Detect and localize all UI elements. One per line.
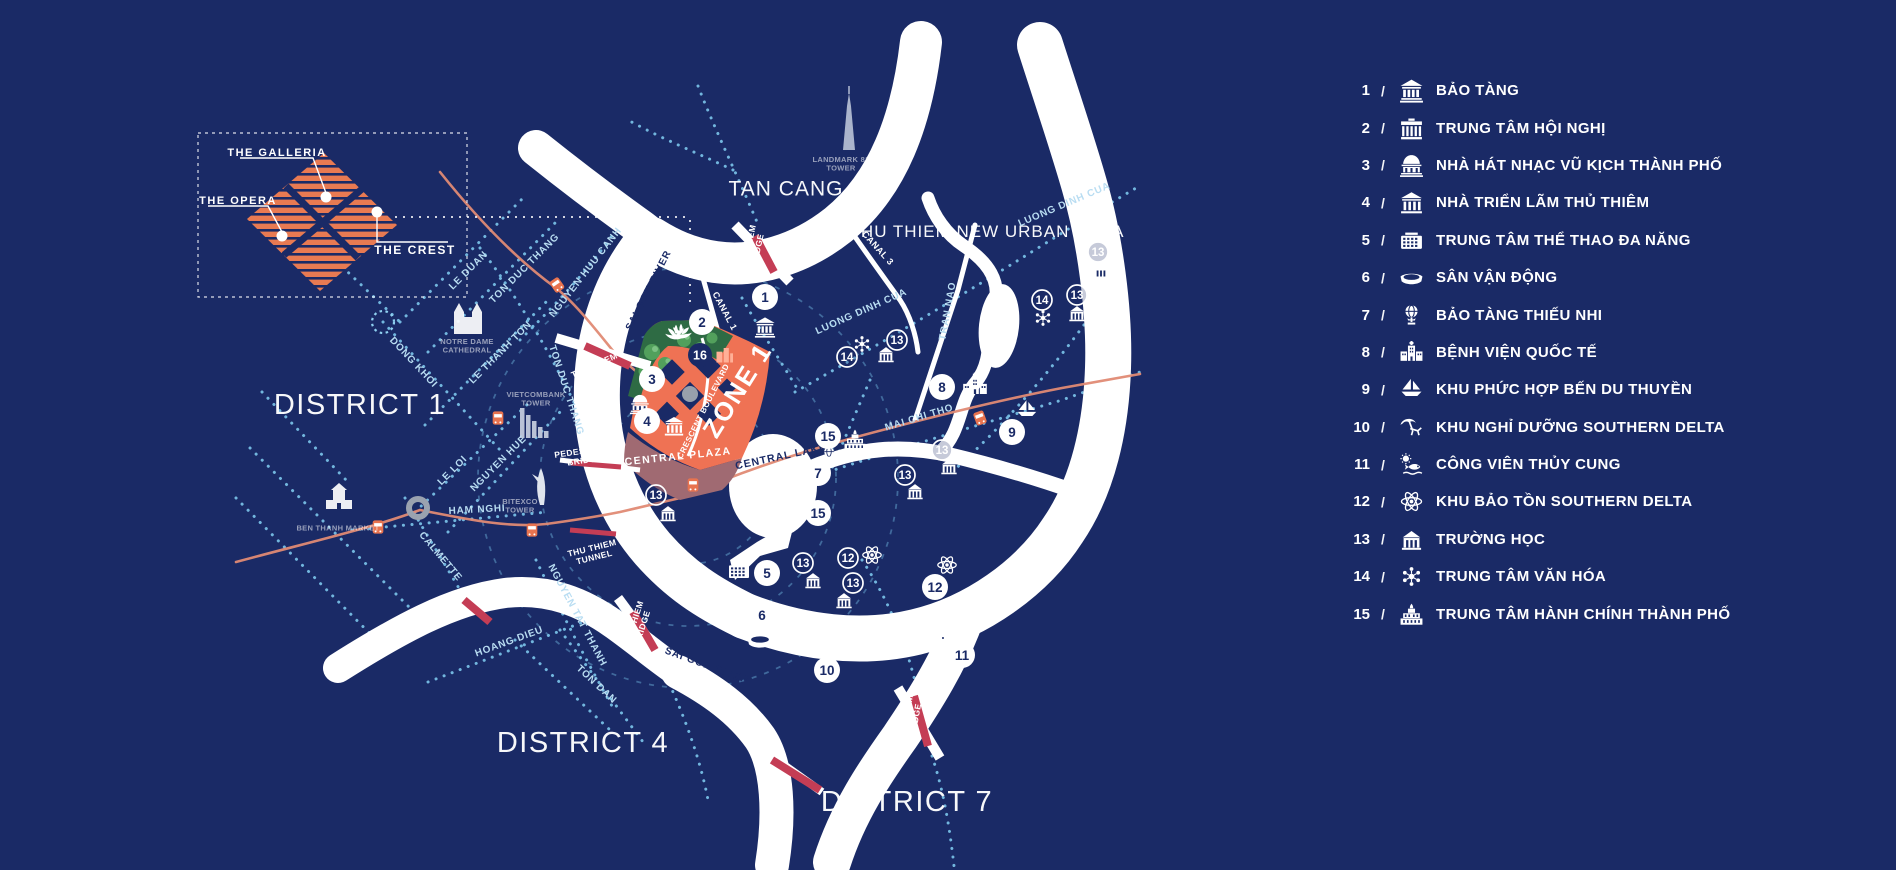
svg-text:5: 5 — [763, 566, 771, 581]
svg-text:13: 13 — [899, 470, 912, 482]
svg-text:15: 15 — [820, 429, 836, 444]
legend-number: 7 — [1340, 307, 1370, 324]
svg-text:7: 7 — [814, 466, 822, 481]
map-label: THE CREST — [374, 243, 456, 257]
legend-item-1: 1 / BẢO TÀNG — [1340, 72, 1880, 109]
svg-text:11: 11 — [955, 648, 970, 663]
legend-separator: / — [1370, 195, 1396, 211]
svg-text:6: 6 — [758, 608, 766, 623]
legend-item-2: 2 / TRUNG TÂM HỘI NGHỊ — [1340, 109, 1880, 146]
bus-icon — [493, 411, 504, 424]
svg-text:13: 13 — [650, 490, 663, 502]
legend-separator: / — [1370, 120, 1396, 136]
legend-item-5: 5 / TRUNG TÂM THỂ THAO ĐA NĂNG — [1340, 222, 1880, 259]
svg-text:13: 13 — [891, 335, 904, 347]
map-marker-15: 15 — [805, 500, 831, 526]
svg-text:13: 13 — [797, 558, 810, 570]
plaza-hub — [682, 386, 698, 402]
sailboat-icon — [1396, 377, 1426, 403]
svg-text:12: 12 — [842, 553, 855, 565]
map-label: THE OPERA — [199, 195, 277, 207]
svg-text:13: 13 — [936, 445, 949, 457]
legend-label: TRƯỜNG HỌC — [1436, 531, 1545, 548]
svg-text:1: 1 — [761, 290, 769, 305]
legend-separator: / — [1370, 494, 1396, 510]
svg-text:3: 3 — [648, 372, 656, 387]
stadium-icon — [1396, 265, 1426, 291]
map-label: DISTRICT 4 — [497, 727, 669, 759]
legend-label: TRUNG TÂM HÀNH CHÍNH THÀNH PHỐ — [1436, 606, 1730, 623]
convention-icon — [1396, 115, 1426, 141]
legend-separator: / — [1370, 531, 1396, 547]
legend-item-9: 9 / KHU PHỨC HỢP BẾN DU THUYỀN — [1340, 371, 1880, 408]
map-label: NOTRE DAMECATHEDRAL — [440, 337, 493, 354]
stadium-icon — [748, 636, 773, 648]
legend-separator: / — [1370, 569, 1396, 585]
map-label: DISTRICT 1 — [274, 389, 446, 421]
svg-text:9: 9 — [1008, 425, 1016, 440]
svg-text:12: 12 — [927, 580, 942, 595]
map-label: DISTRICT 7 — [821, 786, 993, 818]
aquarium-icon — [1396, 452, 1426, 478]
legend-item-13: 13 / TRƯỜNG HỌC — [1340, 521, 1880, 558]
legend-item-15: 15 / TRUNG TÂM HÀNH CHÍNH THÀNH PHỐ — [1340, 595, 1880, 632]
svg-text:10: 10 — [819, 663, 834, 678]
legend-number: 5 — [1340, 232, 1370, 249]
legend-number: 3 — [1340, 157, 1370, 174]
legend-item-10: 10 / KHU NGHỈ DƯỠNG SOUTHERN DELTA — [1340, 409, 1880, 446]
museum-icon — [1396, 78, 1426, 104]
legend-number: 8 — [1340, 344, 1370, 361]
legend-separator: / — [1370, 83, 1396, 99]
legend-number: 15 — [1340, 606, 1370, 623]
exhibition-icon — [1396, 190, 1426, 216]
legend-number: 1 — [1340, 82, 1370, 99]
svg-text:2: 2 — [698, 315, 706, 330]
map-label: THE GALLERIA — [227, 147, 326, 159]
svg-text:13: 13 — [847, 578, 860, 590]
legend-label: KHU BẢO TỒN SOUTHERN DELTA — [1436, 493, 1693, 510]
legend-label: SÂN VẬN ĐỘNG — [1436, 269, 1557, 286]
atom-icon — [1396, 489, 1426, 515]
legend-number: 10 — [1340, 419, 1370, 436]
legend-label: BẢO TÀNG THIẾU NHI — [1436, 307, 1602, 324]
svg-text:15: 15 — [810, 506, 826, 521]
legend-number: 9 — [1340, 381, 1370, 398]
legend-label: BẢO TÀNG — [1436, 82, 1519, 99]
svg-text:13: 13 — [1092, 247, 1105, 259]
hospital-icon — [1396, 339, 1426, 365]
svg-text:8: 8 — [938, 380, 946, 395]
legend-label: TRUNG TÂM HỘI NGHỊ — [1436, 120, 1606, 137]
legend-item-4: 4 / NHÀ TRIỂN LÃM THỦ THIÊM — [1340, 184, 1880, 221]
thu-thiem-masterplan-map: DISTRICT 1DISTRICT 4DISTRICT 7TAN CANGTH… — [0, 0, 1896, 870]
legend-item-12: 12 / KHU BẢO TỒN SOUTHERN DELTA — [1340, 483, 1880, 520]
legend-label: KHU NGHỈ DƯỠNG SOUTHERN DELTA — [1436, 419, 1725, 436]
legend-number: 14 — [1340, 568, 1370, 585]
legend-number: 2 — [1340, 120, 1370, 137]
legend-separator: / — [1370, 232, 1396, 248]
legend-label: TRUNG TÂM VĂN HÓA — [1436, 568, 1606, 585]
legend-separator: / — [1370, 307, 1396, 323]
legend-label: BỆNH VIỆN QUỐC TẾ — [1436, 344, 1597, 361]
culture-icon — [1396, 564, 1426, 590]
legend-item-11: 11 / CÔNG VIÊN THỦY CUNG — [1340, 446, 1880, 483]
opera-icon — [1396, 152, 1426, 178]
legend-number: 13 — [1340, 531, 1370, 548]
legend-item-14: 14 / TRUNG TÂM VĂN HÓA — [1340, 558, 1880, 595]
legend-number: 12 — [1340, 493, 1370, 510]
bus-icon — [688, 478, 699, 491]
legend-separator: / — [1370, 382, 1396, 398]
svg-text:13: 13 — [1071, 290, 1084, 302]
globe-icon — [1396, 302, 1426, 328]
legend-separator: / — [1370, 270, 1396, 286]
legend-item-7: 7 / BẢO TÀNG THIẾU NHI — [1340, 296, 1880, 333]
svg-text:14: 14 — [841, 352, 854, 364]
legend-label: NHÀ TRIỂN LÃM THỦ THIÊM — [1436, 194, 1649, 211]
map-label: BITEXCOTOWER — [502, 497, 537, 514]
legend-label: TRUNG TÂM THỂ THAO ĐA NĂNG — [1436, 232, 1691, 249]
svg-text:4: 4 — [643, 414, 651, 429]
map-label: BEN THANH MARKET — [296, 524, 379, 533]
legend-panel: 1 / BẢO TÀNG 2 / TRUNG TÂM HỘI NGHỊ 3 / … — [1340, 72, 1880, 633]
legend-number: 6 — [1340, 269, 1370, 286]
legend-separator: / — [1370, 457, 1396, 473]
bus-icon — [527, 523, 538, 536]
legend-separator: / — [1370, 419, 1396, 435]
resort-icon — [1396, 414, 1426, 440]
svg-text:14: 14 — [1036, 295, 1049, 307]
legend-separator: / — [1370, 344, 1396, 360]
legend-label: KHU PHỨC HỢP BẾN DU THUYỀN — [1436, 381, 1692, 398]
school-icon — [1396, 526, 1426, 552]
legend-number: 11 — [1340, 456, 1370, 473]
legend-separator: / — [1370, 606, 1396, 622]
map-label: THU THIEM NEW URBAN AREA — [850, 222, 1125, 241]
legend-number: 4 — [1340, 194, 1370, 211]
legend-item-8: 8 / BỆNH VIỆN QUỐC TẾ — [1340, 334, 1880, 371]
legend-item-6: 6 / SÂN VẬN ĐỘNG — [1340, 259, 1880, 296]
legend-label: CÔNG VIÊN THỦY CUNG — [1436, 456, 1621, 473]
legend-label: NHÀ HÁT NHẠC VŨ KỊCH THÀNH PHỐ — [1436, 157, 1722, 174]
cityhall-icon — [1396, 601, 1426, 627]
legend-separator: / — [1370, 157, 1396, 173]
sports-icon — [1396, 227, 1426, 253]
legend-item-3: 3 / NHÀ HÁT NHẠC VŨ KỊCH THÀNH PHỐ — [1340, 147, 1880, 184]
map-label: TAN CANG — [729, 177, 844, 200]
svg-text:16: 16 — [693, 349, 707, 363]
